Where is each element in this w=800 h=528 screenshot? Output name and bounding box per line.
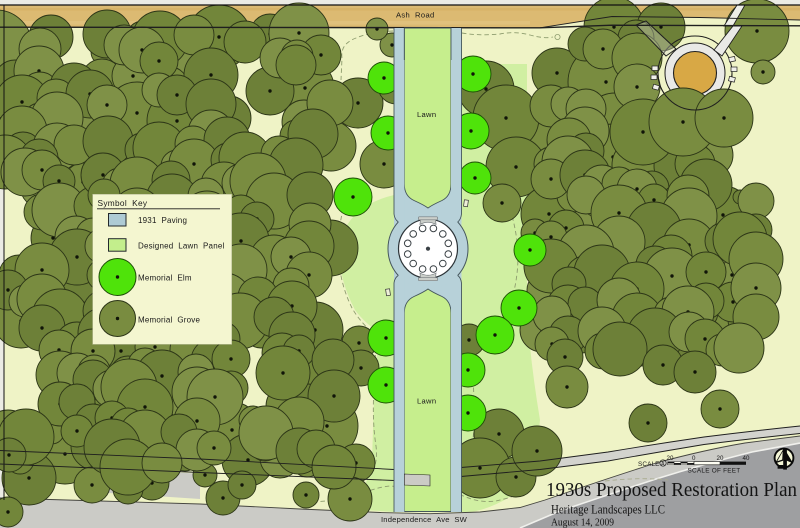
svg-text:Lawn: Lawn (417, 397, 436, 406)
svg-text:1931 Paving: 1931 Paving (138, 216, 187, 225)
svg-text:Independence Ave SW: Independence Ave SW (381, 515, 468, 524)
svg-text:SCALE: SCALE (638, 461, 659, 468)
svg-text:Memorial Elm: Memorial Elm (138, 274, 192, 283)
svg-text:20: 20 (717, 455, 724, 462)
svg-text:Ash Road: Ash Road (396, 11, 435, 20)
svg-text:20: 20 (667, 455, 674, 462)
svg-text:Designed Lawn Panel: Designed Lawn Panel (138, 242, 224, 251)
svg-text:August 14, 2009: August 14, 2009 (551, 517, 614, 528)
svg-text:Heritage Landscapes LLC: Heritage Landscapes LLC (551, 503, 665, 517)
svg-text:Symbol Key: Symbol Key (98, 198, 148, 208)
svg-text:0: 0 (692, 455, 696, 462)
svg-text:SCALE OF FEET: SCALE OF FEET (688, 468, 741, 475)
svg-text:1930s Proposed Restoration Pla: 1930s Proposed Restoration Plan (546, 480, 797, 501)
svg-text:Memorial Grove: Memorial Grove (138, 316, 200, 325)
svg-text:Lawn: Lawn (417, 110, 436, 119)
svg-text:40: 40 (743, 455, 750, 462)
